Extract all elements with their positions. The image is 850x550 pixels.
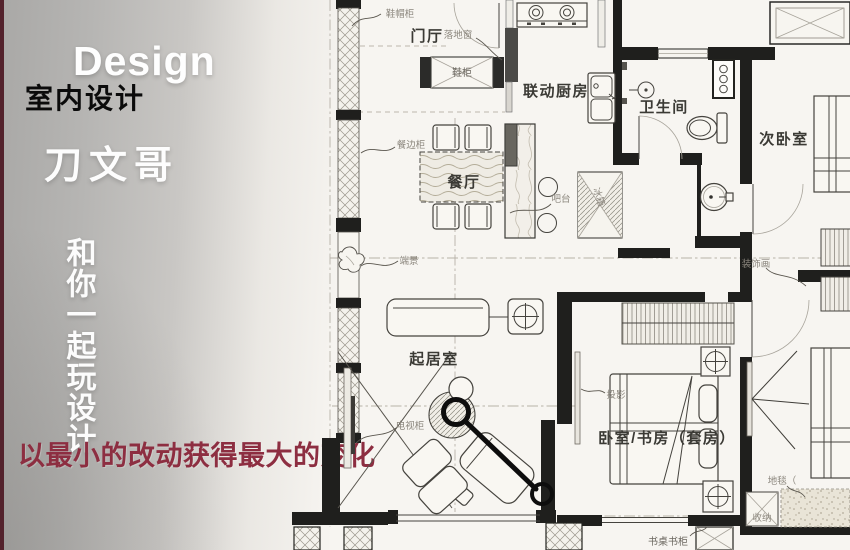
fridge-cabinet: 冰箱 [578, 172, 622, 238]
projector-beams [752, 351, 809, 449]
toilet [687, 113, 727, 143]
downlight-symbol [703, 481, 733, 512]
item-label-endscape: 端景 [399, 255, 418, 267]
window-secondary-bedroom [770, 2, 850, 44]
sofa [387, 299, 508, 336]
dining-chair [433, 125, 459, 150]
suite-furniture [575, 303, 734, 512]
bed [814, 96, 850, 192]
bed [610, 374, 718, 484]
item-label-shoe-hat-cabinet: 鞋帽柜 [386, 8, 415, 20]
room-label-suite: 卧室/书房（套房） [598, 429, 736, 447]
presentation-frame: Design 室内设计 刀文哥 和你一起玩设计 以最小的改动获得最大的变化 [0, 0, 850, 550]
room-label-secondary-bedroom: 次卧室 [759, 130, 809, 148]
floor-plan: 冰箱 [0, 0, 850, 550]
maroon-edge-strip [0, 0, 4, 550]
downlight-symbol [701, 347, 730, 376]
room-label-bathroom: 卫生间 [639, 98, 689, 116]
shower [622, 62, 654, 104]
right-room [746, 348, 850, 527]
room-label-kitchen: 联动厨房 [523, 82, 589, 100]
living-room-furniture [338, 299, 543, 517]
item-label-storage: 收纳 [752, 512, 771, 524]
item-label-shoe-cabinet: 鞋柜 [452, 66, 472, 79]
round-washbasin [701, 184, 734, 211]
kitchen-sink [588, 73, 616, 123]
pillow [699, 385, 717, 422]
dining-chair [465, 125, 491, 150]
item-label-tv-cabinet: 电视柜 [396, 420, 425, 432]
item-label-sideboard: 餐边柜 [397, 139, 426, 151]
bar-island [505, 124, 558, 238]
room-label-living: 起居室 [408, 350, 459, 368]
item-label-decor-painting: 装饰画 [742, 258, 771, 270]
item-label-projection: 投影 [606, 389, 626, 401]
endscape-plant [339, 247, 365, 272]
dining-chair [465, 204, 491, 229]
room-label-foyer: 门厅 [410, 27, 443, 45]
dining-chair [433, 204, 459, 229]
item-label-bar: 吧台 [551, 193, 570, 205]
nightstand [821, 229, 850, 266]
bar-stool [538, 214, 557, 233]
projection-screen [575, 352, 580, 444]
item-label-carpet: 地毯（ [768, 475, 797, 487]
storage-column [713, 60, 734, 98]
stove [517, 3, 587, 27]
projection-screen [747, 362, 752, 436]
carpet [781, 489, 850, 527]
room-label-dining: 餐厅 [447, 173, 480, 191]
side-table [508, 299, 543, 334]
item-label-desk-bookcase: 书桌书柜 [648, 535, 688, 548]
nightstand [821, 277, 850, 311]
item-label-floor-window: 落地窗 [444, 29, 473, 41]
